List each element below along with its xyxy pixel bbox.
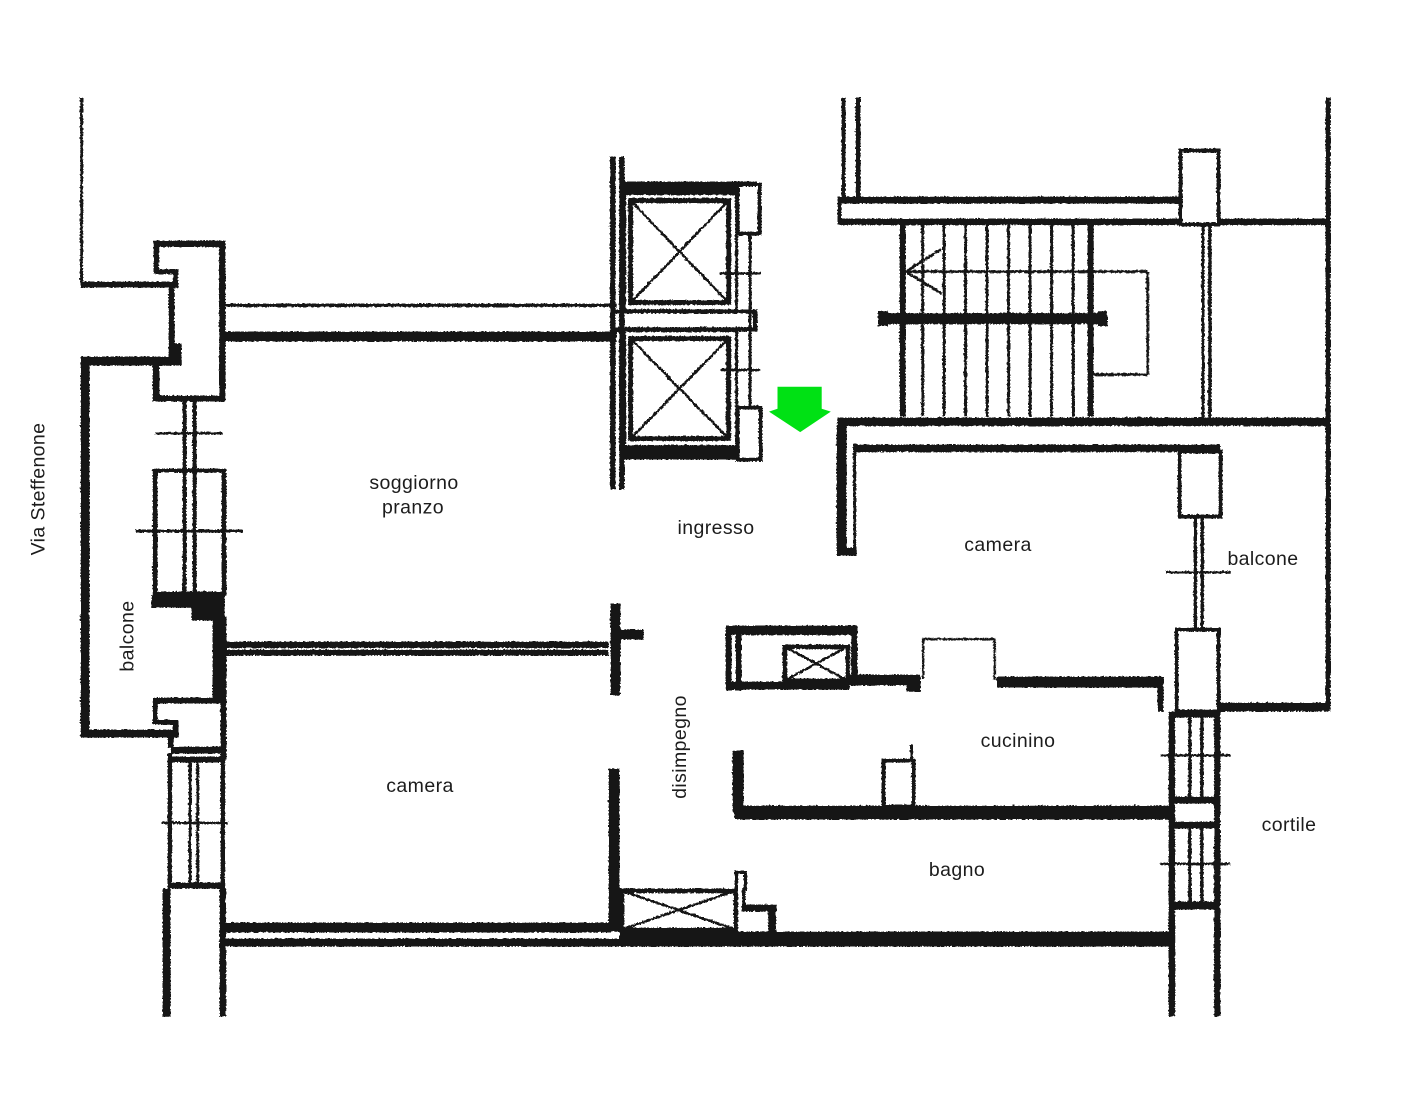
svg-text:ingresso: ingresso — [678, 517, 755, 539]
svg-text:soggiorno: soggiorno — [369, 472, 458, 494]
svg-text:cucinino: cucinino — [981, 730, 1056, 752]
svg-text:pranzo: pranzo — [382, 497, 444, 519]
svg-text:balcone: balcone — [117, 600, 139, 671]
svg-text:disimpegno: disimpegno — [669, 695, 691, 799]
svg-text:Via Steffenone: Via Steffenone — [28, 423, 50, 556]
svg-text:balcone: balcone — [1227, 548, 1298, 570]
svg-text:camera: camera — [964, 534, 1031, 556]
svg-text:cortile: cortile — [1262, 814, 1317, 836]
svg-text:camera: camera — [386, 775, 453, 797]
svg-text:bagno: bagno — [929, 859, 985, 881]
